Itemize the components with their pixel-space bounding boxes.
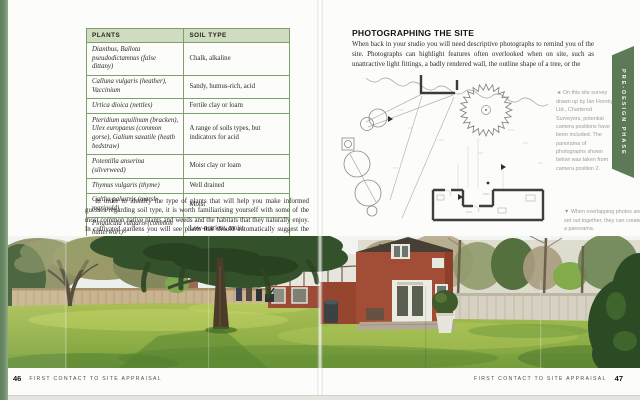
book-edge-strip — [0, 0, 8, 400]
page-number: 47 — [615, 374, 623, 383]
soil-cell: Well drained — [184, 179, 290, 194]
soil-cell: Moist clay or loam — [184, 155, 290, 179]
soil-cell: A range of soils types, but indicators f… — [184, 114, 290, 155]
table-row: Calluna vulgaris (heather), Vaccinium Sa… — [87, 75, 290, 99]
garden-panorama-photo — [8, 236, 640, 368]
table-header-row: PLANTS SOIL TYPE — [87, 29, 290, 43]
plant-cell: Urtica dioica (nettles) — [87, 99, 184, 114]
soil-cell: Fertile clay or loam — [184, 99, 290, 114]
plant-cell: Pteridium aquilinum (bracken), Ulex euro… — [87, 114, 184, 155]
left-footer: 46 FIRST CONTACT TO SITE APPRAISAL — [13, 374, 162, 383]
table-row: Dianthus, Ballota pseudodictamnus (false… — [87, 43, 290, 75]
survey-caption: ◄ On this site survey drawn up by Ian Ho… — [556, 89, 614, 173]
table-row: Pteridium aquilinum (bracken), Ulex euro… — [87, 114, 290, 155]
table-row: Urtica dioica (nettles) Fertile clay or … — [87, 99, 290, 114]
column-header-plants: PLANTS — [87, 29, 184, 43]
soil-cell: Sandy, humus-rich, acid — [184, 75, 290, 99]
table-row: Thymus vulgaris (thyme) Well drained — [87, 179, 290, 194]
running-title: FIRST CONTACT TO SITE APPRAISAL — [29, 374, 162, 382]
section-body-text: When back in your studio you will need d… — [352, 40, 594, 69]
table-row: Potentilla anserina (silverweed) Moist c… — [87, 155, 290, 179]
soil-cell: Chalk, alkaline — [184, 43, 290, 75]
column-header-soil-type: SOIL TYPE — [184, 29, 290, 43]
site-survey-drawing — [338, 68, 556, 234]
page-bottom-edge — [8, 395, 640, 400]
page-number: 46 — [13, 374, 21, 383]
right-footer: FIRST CONTACT TO SITE APPRAISAL 47 — [474, 374, 623, 383]
running-title: FIRST CONTACT TO SITE APPRAISAL — [474, 374, 607, 382]
section-heading: PHOTOGRAPHING THE SITE — [352, 28, 474, 38]
plant-cell: Dianthus, Ballota pseudodictamnus (false… — [87, 43, 184, 75]
pre-design-phase-tab: PRE-DESIGN PHASE — [612, 46, 634, 178]
plant-cell: Potentilla anserina (silverweed) — [87, 155, 184, 179]
plant-cell: Thymus vulgaris (thyme) — [87, 179, 184, 194]
plant-cell: Calluna vulgaris (heather), Vaccinium — [87, 75, 184, 99]
panorama-caption: ▼ When overlapping photos are set out to… — [564, 208, 640, 233]
